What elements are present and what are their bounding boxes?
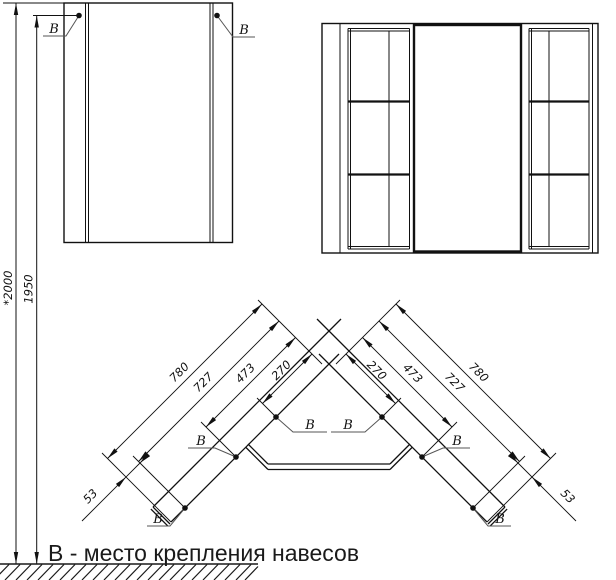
mount-marker-label: В bbox=[342, 418, 353, 433]
cabinet-outline bbox=[322, 24, 598, 254]
mount-marker-label: В bbox=[238, 23, 249, 38]
dim-780-right-label: 780 bbox=[466, 359, 491, 384]
mount-marker-label: В bbox=[152, 512, 163, 527]
extension-lines-right bbox=[336, 300, 556, 522]
leader-line bbox=[276, 417, 327, 432]
dimension-mount-height-label: 1950 bbox=[22, 274, 36, 303]
mount-marker-label: В bbox=[48, 22, 59, 37]
extension-lines-left bbox=[102, 300, 322, 522]
cabinet-elevation-view bbox=[322, 24, 598, 254]
assembly-drawing-sheet: *2000 1950 В В 780 727 bbox=[0, 0, 616, 580]
mount-point-dot bbox=[470, 505, 476, 511]
front-panel-lines bbox=[246, 444, 412, 470]
ground-hatching bbox=[0, 564, 258, 580]
mount-point-dot bbox=[273, 414, 279, 420]
dim-727-left-label: 727 bbox=[190, 369, 216, 395]
mount-point-dot bbox=[76, 13, 82, 19]
front-mount-marker-right: В bbox=[214, 13, 255, 38]
dim-53-left-label: 53 bbox=[80, 486, 100, 506]
leader-line bbox=[217, 16, 255, 38]
dimension-lines-right bbox=[346, 304, 576, 521]
dim-53-right-label: 53 bbox=[558, 486, 578, 506]
mount-marker-label: В bbox=[494, 512, 505, 527]
dimension-arrows-right bbox=[346, 304, 551, 487]
assembly-drawing: *2000 1950 В В 780 727 bbox=[0, 0, 616, 580]
mount-marker-label: В bbox=[195, 434, 206, 449]
dimension-total-height-label: *2000 bbox=[1, 270, 15, 305]
panel-outline bbox=[64, 3, 233, 243]
mount-point-dot bbox=[182, 505, 188, 511]
mount-marker-label: В bbox=[451, 434, 462, 449]
dim-727-right-label: 727 bbox=[442, 369, 468, 395]
cabinet-vertical-lines bbox=[340, 24, 593, 254]
cabinet-horizontal-lines bbox=[348, 29, 589, 250]
dimension-arrows-left bbox=[108, 304, 313, 487]
dimension-lines-left bbox=[82, 304, 312, 521]
hatch-strokes bbox=[0, 565, 258, 580]
shelf-lines bbox=[348, 102, 589, 175]
front-mount-marker-left: В bbox=[43, 13, 82, 37]
mirror-door bbox=[414, 25, 521, 252]
front-elevation-view bbox=[3, 3, 233, 564]
legend-text: В - место крепления навесов bbox=[48, 540, 359, 566]
mount-point-dot bbox=[233, 454, 239, 460]
plan-mount-marker-center-right: В bbox=[331, 414, 385, 433]
mount-point-dot bbox=[214, 13, 220, 19]
mount-point-dot bbox=[419, 454, 425, 460]
leader-line bbox=[331, 417, 382, 432]
plan-mount-marker-bottom-right: В bbox=[470, 505, 511, 527]
panel-inner-lines bbox=[86, 3, 214, 243]
plan-view bbox=[82, 300, 576, 526]
mount-point-dot bbox=[379, 414, 385, 420]
mount-marker-label: В bbox=[304, 418, 315, 433]
dim-780-left-label: 780 bbox=[166, 359, 191, 384]
plan-mount-marker-center-left: В bbox=[273, 414, 327, 433]
plan-mount-marker-bottom-left: В bbox=[147, 505, 188, 527]
